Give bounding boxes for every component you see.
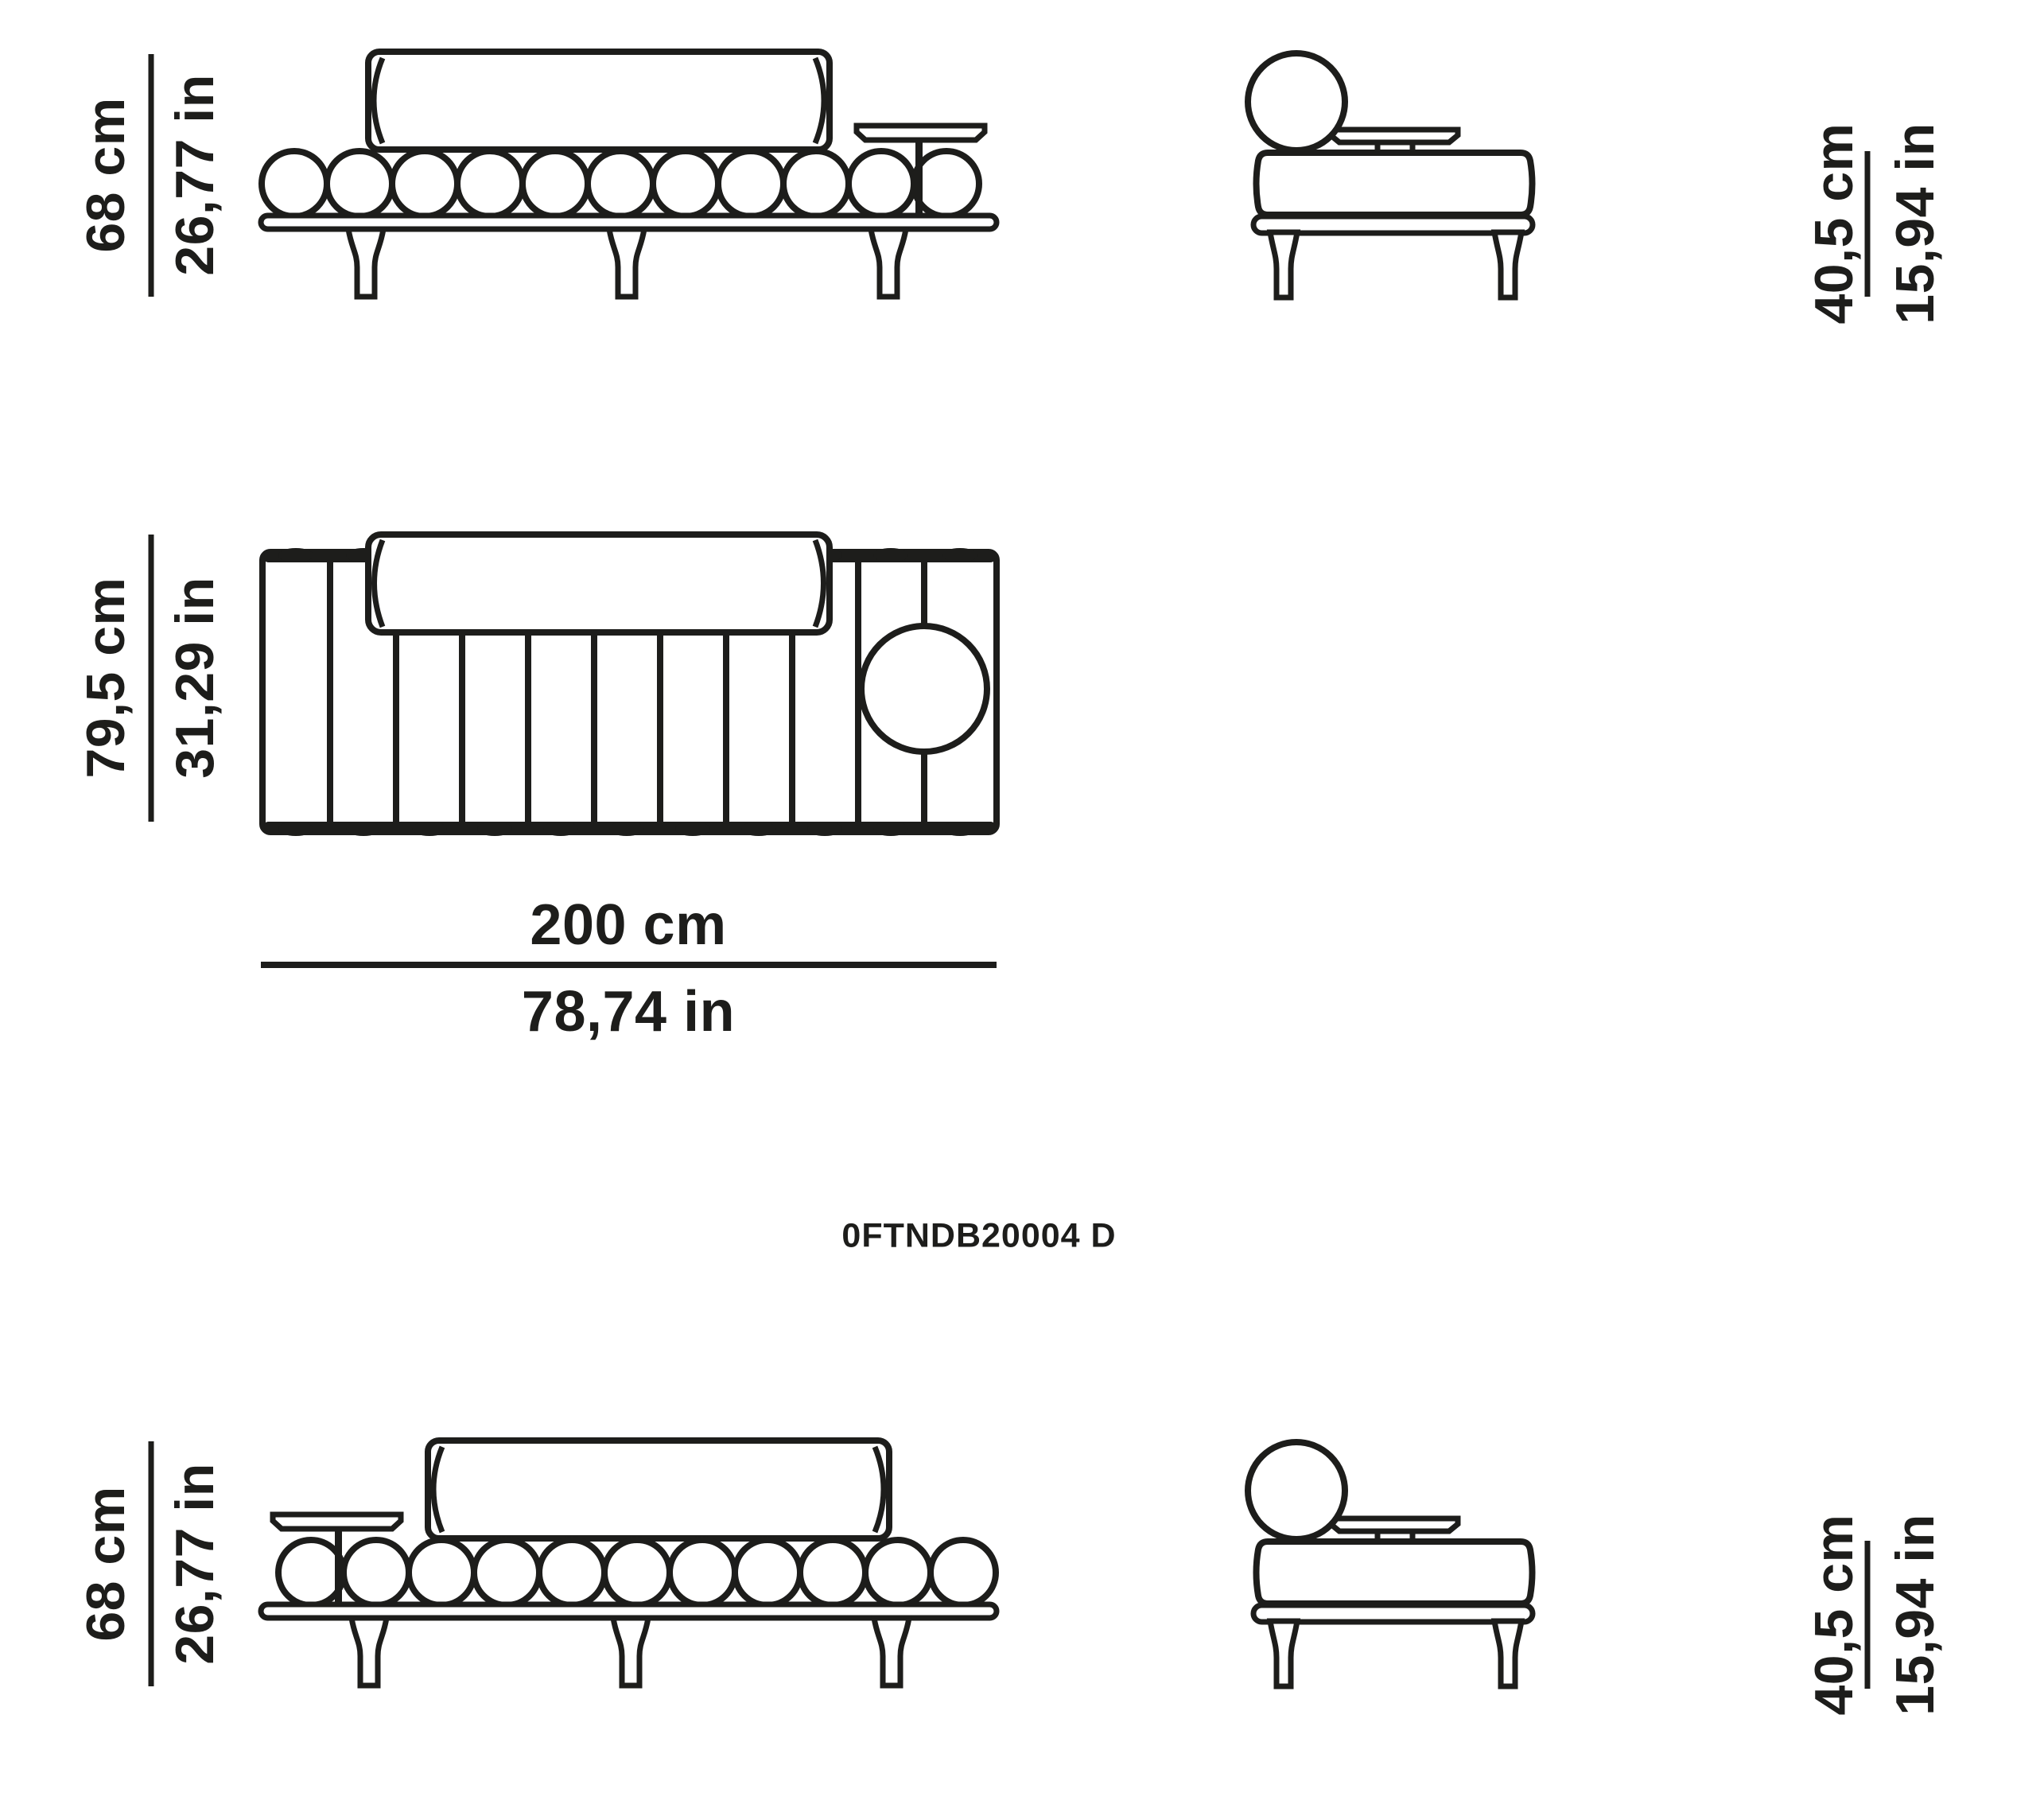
side-view-top [1248, 53, 1533, 297]
label-front-height-top-metric: 68 cm [79, 97, 133, 252]
label-side-height-top-metric: 40,5 cm [1807, 122, 1861, 324]
product-code: 0FTNDB20004 D [841, 1219, 1116, 1254]
label-front-height-bottom-metric: 68 cm [79, 1486, 133, 1641]
dimension-lines [151, 54, 1867, 1689]
label-front-height-top-imperial: 26,77 in [168, 74, 222, 276]
front-view-top [261, 52, 997, 297]
sphere-cushion-plan [861, 626, 987, 752]
label-side-height-bottom-imperial: 15,94 in [1888, 1514, 1942, 1716]
technical-drawing-sheet: 68 cm 26,77 in 79,5 cm 31,29 in 68 cm 26… [0, 0, 2044, 1812]
front-view-bottom-mirrored [261, 1441, 997, 1686]
top-plan-view [262, 535, 997, 836]
label-depth-imperial: 31,29 in [168, 577, 222, 779]
label-side-height-bottom-metric: 40,5 cm [1807, 1514, 1861, 1715]
label-width-metric: 200 cm [530, 896, 726, 954]
bolster-plan [368, 535, 830, 632]
side-view-bottom [1248, 1442, 1533, 1686]
label-side-height-top-imperial: 15,94 in [1888, 122, 1942, 325]
label-depth-metric: 79,5 cm [79, 577, 133, 778]
label-front-height-bottom-imperial: 26,77 in [168, 1463, 222, 1665]
furniture-line-drawings [0, 0, 2044, 1812]
label-width-imperial: 78,74 in [522, 983, 735, 1040]
